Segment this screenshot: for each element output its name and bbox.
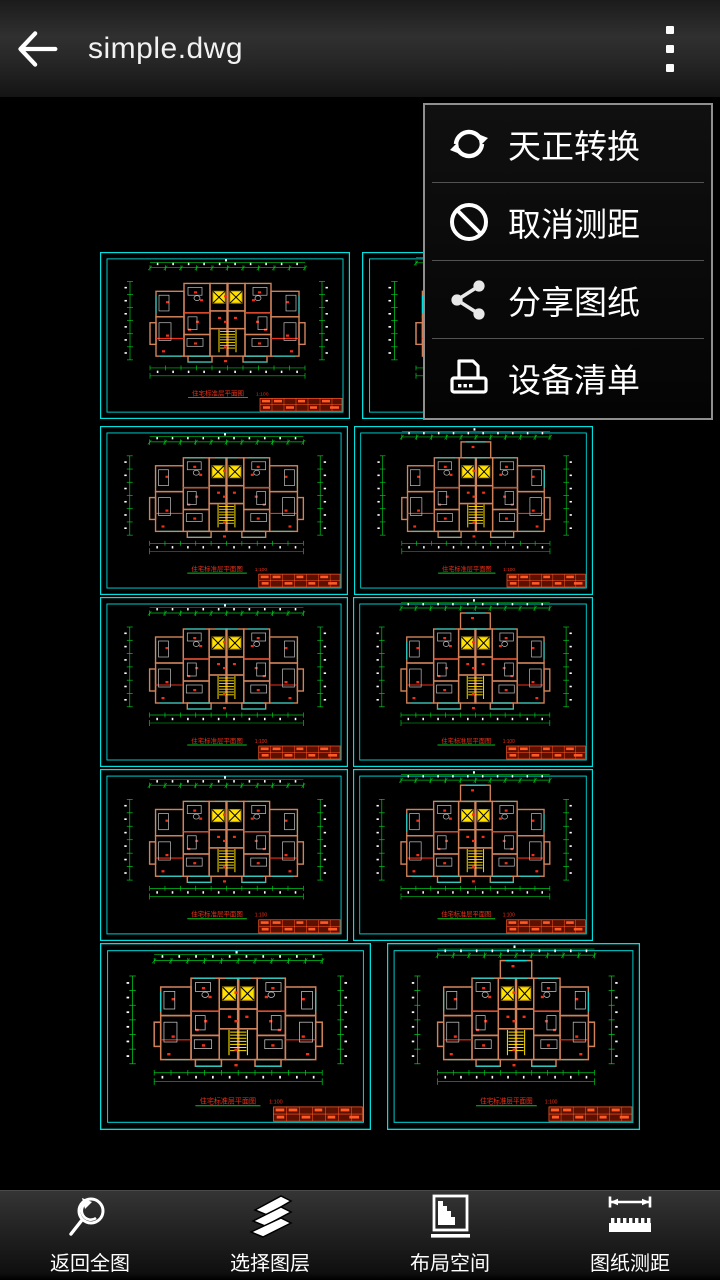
svg-text:住宅标准层平面图: 住宅标准层平面图: [441, 736, 491, 745]
menu-item-label: 分享图纸: [508, 276, 640, 324]
toolbar-item-label: 选择图层: [230, 1247, 310, 1276]
menu-item-tianzheng-convert[interactable]: 天正转换: [425, 105, 711, 182]
toolbar-item-label: 返回全图: [50, 1247, 130, 1276]
floor-plan-tile-9[interactable]: 住宅标准层平面图1:100: [100, 943, 371, 1130]
svg-text:住宅标准层平面图: 住宅标准层平面图: [480, 1096, 533, 1105]
svg-text:1:100: 1:100: [503, 739, 515, 745]
menu-item-cancel-measure[interactable]: 取消测距: [425, 183, 711, 260]
svg-text:1:100: 1:100: [269, 1100, 283, 1106]
svg-text:住宅标准层平面图: 住宅标准层平面图: [442, 564, 492, 573]
floor-plan-tile-10[interactable]: 住宅标准层平面图1:100: [387, 943, 640, 1130]
toolbar-item-zoom-full[interactable]: 返回全图: [0, 1190, 180, 1280]
printer-icon: [447, 356, 491, 400]
menu-item-share-drawing[interactable]: 分享图纸: [425, 261, 711, 338]
toolbar-item-select-layers[interactable]: 选择图层: [180, 1190, 360, 1280]
floor-plan-tile-7[interactable]: 住宅标准层平面图1:100: [100, 769, 348, 941]
arrow-left-icon: [15, 27, 59, 71]
svg-text:住宅标准层平面图: 住宅标准层平面图: [441, 910, 491, 919]
svg-text:住宅标准层平面图: 住宅标准层平面图: [192, 388, 244, 397]
layout-icon: [425, 1194, 475, 1240]
floor-plan-tile-4[interactable]: 住宅标准层平面图1:100: [354, 426, 593, 595]
floor-plan-tile-6[interactable]: 住宅标准层平面图1:100: [353, 597, 593, 767]
svg-text:住宅标准层平面图: 住宅标准层平面图: [200, 1097, 256, 1106]
svg-text:1:100: 1:100: [255, 739, 268, 745]
floor-plan-tile-3[interactable]: 住宅标准层平面图1:100: [100, 426, 348, 595]
menu-item-label: 取消测距: [508, 198, 640, 246]
context-menu: 天正转换 取消测距 分享图纸 设备清单: [423, 103, 713, 420]
layers-icon: [245, 1194, 295, 1240]
svg-text:1:100: 1:100: [545, 1099, 558, 1105]
svg-text:住宅标准层平面图: 住宅标准层平面图: [191, 736, 243, 745]
menu-item-label: 设备清单: [508, 354, 640, 402]
floor-plan-tile-5[interactable]: 住宅标准层平面图1:100: [100, 597, 348, 767]
floor-plan-tile-1[interactable]: 住宅标准层平面图1:100: [100, 252, 350, 419]
svg-text:1:100: 1:100: [256, 391, 269, 397]
svg-text:1:100: 1:100: [255, 913, 268, 919]
sync-icon: [447, 122, 491, 166]
svg-text:住宅标准层平面图: 住宅标准层平面图: [191, 564, 242, 573]
svg-text:1:100: 1:100: [255, 567, 268, 573]
overflow-menu-button[interactable]: [650, 0, 690, 97]
zoom-extents-icon: [65, 1194, 115, 1240]
topbar: simple.dwg: [0, 0, 720, 97]
vertical-ellipsis-icon: [666, 26, 674, 34]
bottom-toolbar: 返回全图 选择图层 布局空间: [0, 1190, 720, 1280]
page-title: simple.dwg: [88, 32, 243, 66]
toolbar-item-layout-space[interactable]: 布局空间: [360, 1190, 540, 1280]
floor-plan-tile-8[interactable]: 住宅标准层平面图1:100: [353, 769, 593, 941]
toolbar-item-label: 图纸测距: [590, 1247, 670, 1276]
toolbar-item-measure[interactable]: 图纸测距: [540, 1190, 720, 1280]
svg-text:1:100: 1:100: [503, 913, 515, 919]
cancel-icon: [447, 200, 491, 244]
menu-item-label: 天正转换: [508, 120, 640, 168]
svg-text:1:100: 1:100: [503, 567, 515, 573]
back-button[interactable]: [0, 0, 74, 97]
toolbar-item-label: 布局空间: [410, 1247, 490, 1276]
menu-item-device-list[interactable]: 设备清单: [425, 339, 711, 416]
measure-icon: [605, 1194, 655, 1240]
svg-text:住宅标准层平面图: 住宅标准层平面图: [191, 910, 242, 919]
share-icon: [447, 278, 491, 322]
